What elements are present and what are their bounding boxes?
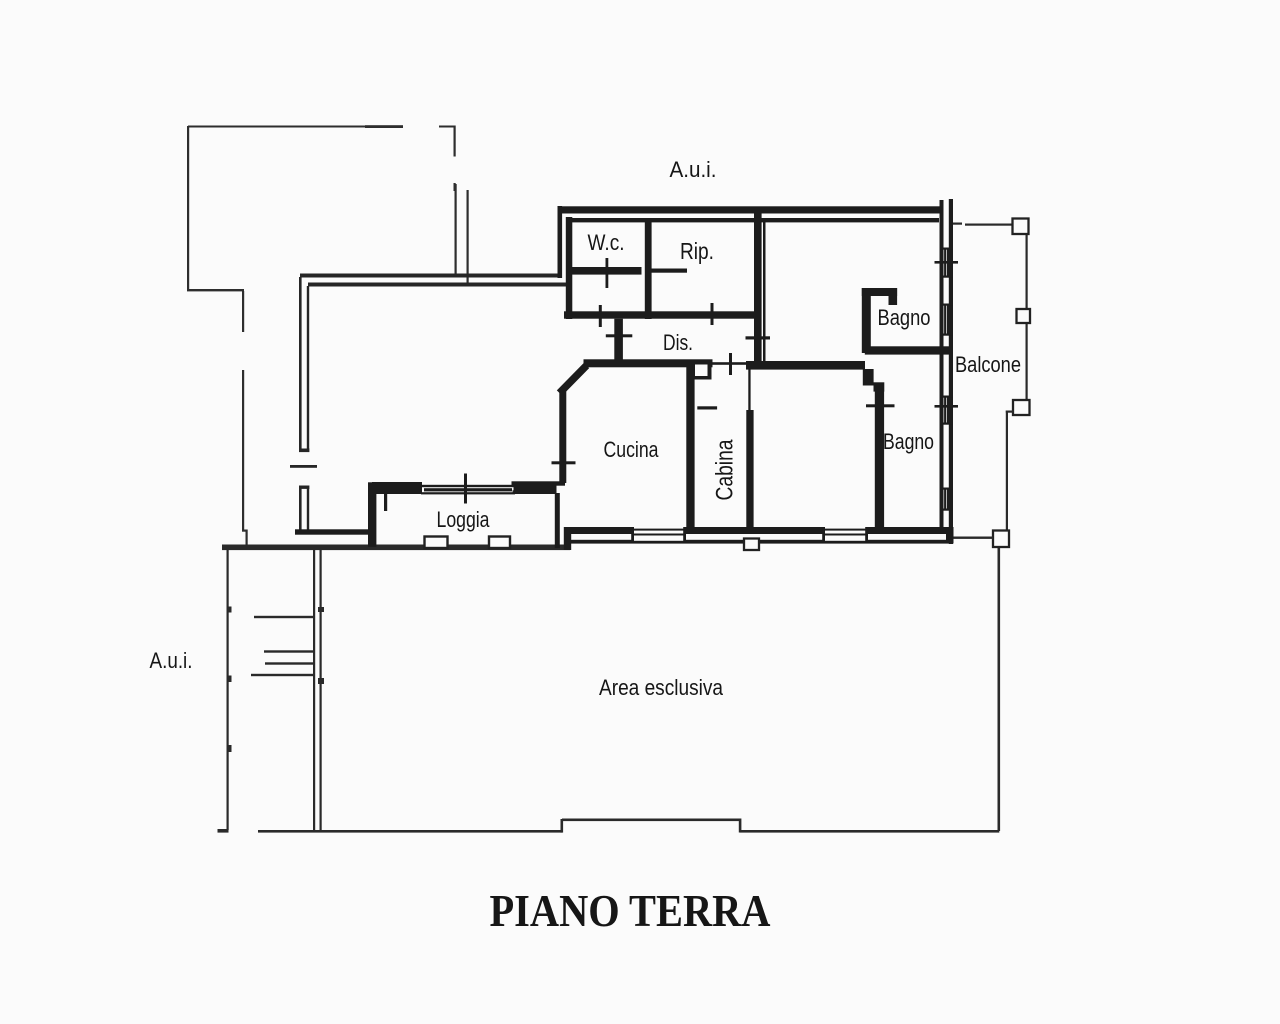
svg-text:PIANO TERRA: PIANO TERRA — [490, 885, 771, 936]
svg-text:A.u.i.: A.u.i. — [150, 648, 193, 673]
svg-text:Balcone: Balcone — [955, 352, 1021, 377]
svg-text:Rip.: Rip. — [680, 238, 714, 264]
svg-text:Bagno: Bagno — [878, 305, 931, 330]
svg-text:Cabina: Cabina — [712, 439, 739, 501]
svg-text:Bagno: Bagno — [883, 429, 934, 454]
svg-text:Dis.: Dis. — [663, 330, 693, 355]
svg-text:W.c.: W.c. — [588, 230, 625, 255]
svg-text:Area esclusiva: Area esclusiva — [599, 675, 724, 700]
svg-text:A.u.i.: A.u.i. — [670, 157, 717, 182]
svg-text:Cucina: Cucina — [604, 437, 660, 462]
svg-text:Loggia: Loggia — [437, 507, 491, 532]
